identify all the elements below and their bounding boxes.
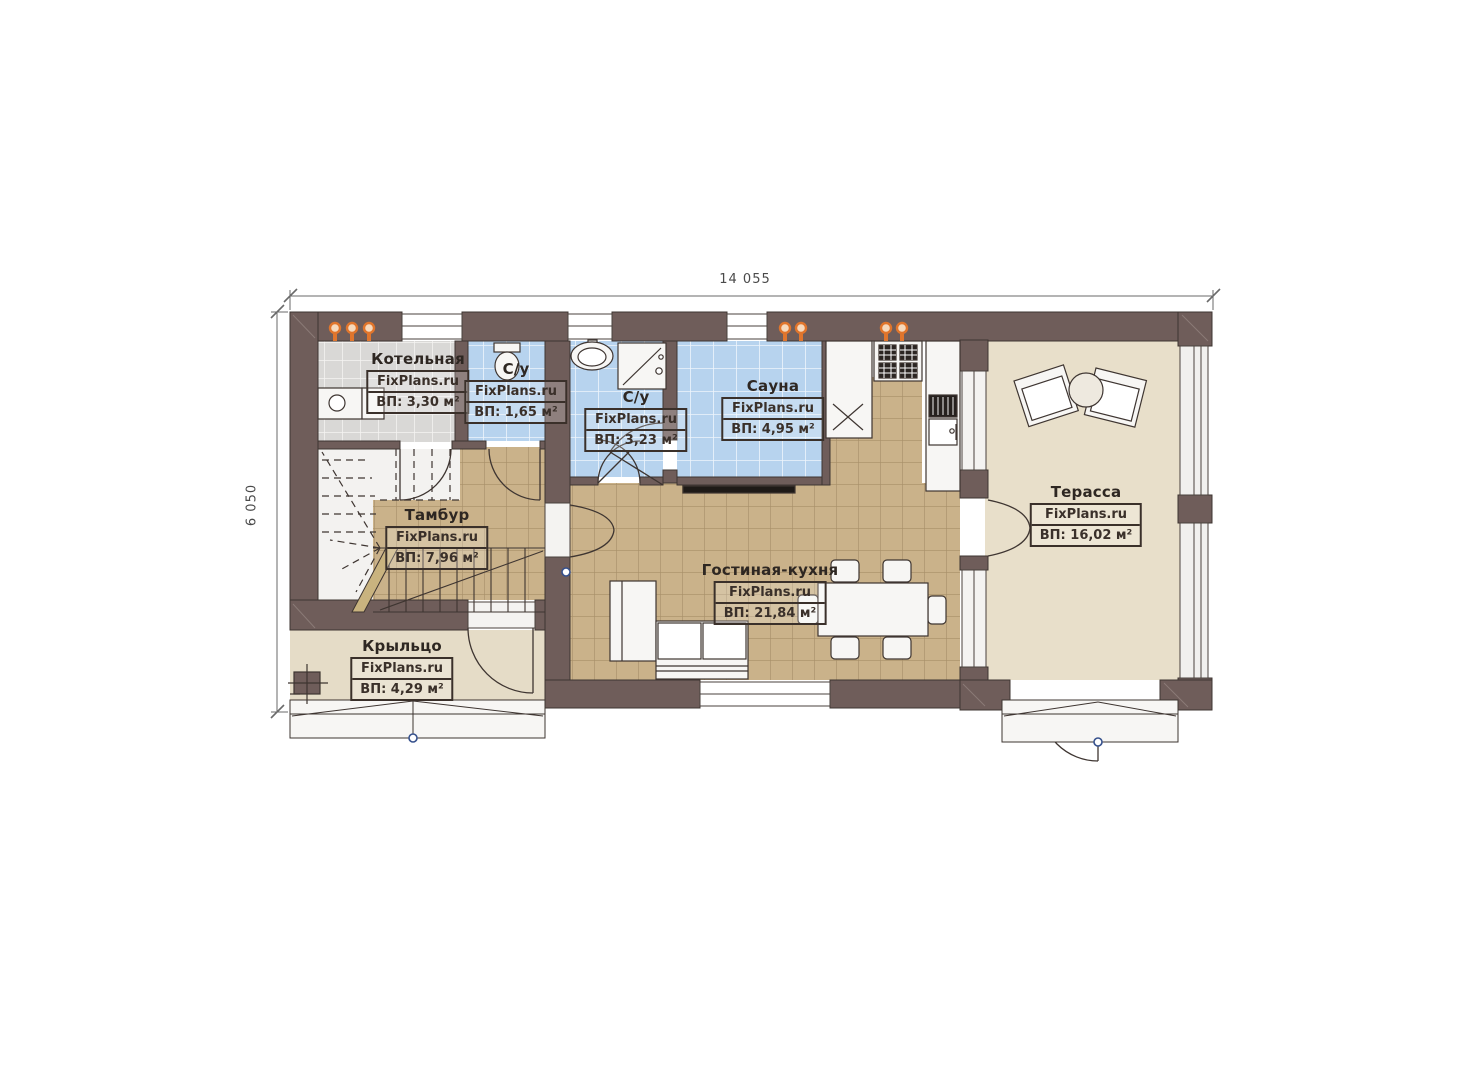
tv-icon: [683, 486, 795, 493]
room-name: Гостиная-кухня: [702, 561, 839, 579]
room-info-box: FixPlans.ru ВП: 4,95 м²: [721, 397, 824, 441]
room-area: ВП: 7,96 м²: [387, 547, 486, 568]
room-label-sauna: Сауна FixPlans.ru ВП: 4,95 м²: [721, 377, 824, 441]
watermark-text: FixPlans.ru: [586, 410, 685, 429]
floor-plan-page: 14 055 6 050 Котельная FixPlans.ru ВП: 3…: [0, 0, 1473, 1080]
room-info-box: FixPlans.ru ВП: 4,29 м²: [350, 657, 453, 701]
room-info-box: FixPlans.ru ВП: 3,30 м²: [366, 370, 469, 414]
room-info-box: FixPlans.ru ВП: 3,23 м²: [584, 408, 687, 452]
room-area: ВП: 4,29 м²: [352, 678, 451, 699]
room-label-boiler: Котельная FixPlans.ru ВП: 3,30 м²: [366, 350, 469, 414]
watermark-text: FixPlans.ru: [387, 528, 486, 547]
room-area: ВП: 16,02 м²: [1032, 524, 1140, 545]
entry-marker-dot: [562, 568, 570, 576]
glazing-living-terrace: [962, 371, 986, 667]
room-info-box: FixPlans.ru ВП: 21,84 м²: [714, 581, 826, 625]
porch-steps: [290, 700, 545, 742]
watermark-text: FixPlans.ru: [368, 372, 467, 391]
room-label-wc1: С/у FixPlans.ru ВП: 1,65 м²: [464, 360, 567, 424]
window-top-1: [402, 314, 462, 339]
terrace-table-icon: [1069, 373, 1103, 407]
armchair-icon: [610, 581, 656, 661]
room-area: ВП: 21,84 м²: [716, 602, 824, 623]
room-area: ВП: 4,95 м²: [723, 418, 822, 439]
window-living-south: [700, 682, 830, 706]
room-area: ВП: 1,65 м²: [466, 401, 565, 422]
stove-icon: [874, 341, 922, 381]
watermark-text: FixPlans.ru: [352, 659, 451, 678]
room-name: Котельная: [366, 350, 469, 368]
watermark-text: FixPlans.ru: [1032, 505, 1140, 524]
sofa-icon: [656, 621, 748, 679]
room-info-box: FixPlans.ru ВП: 16,02 м²: [1030, 503, 1142, 547]
room-label-wc2: С/у FixPlans.ru ВП: 3,23 м²: [584, 388, 687, 452]
dimension-width-label: 14 055: [719, 272, 771, 287]
room-area: ВП: 3,23 м²: [586, 429, 685, 450]
room-name: Терасса: [1030, 483, 1142, 501]
window-top-2: [568, 314, 612, 339]
kitchen-sink-icon: [929, 395, 957, 445]
terrace-steps: [1002, 700, 1178, 746]
floor-plan-drawing: [0, 0, 1473, 1080]
room-name: С/у: [464, 360, 567, 378]
watermark-text: FixPlans.ru: [723, 399, 822, 418]
window-top-3: [727, 314, 767, 339]
room-name: Сауна: [721, 377, 824, 395]
room-label-porch: Крыльцо FixPlans.ru ВП: 4,29 м²: [350, 637, 453, 701]
room-info-box: FixPlans.ru ВП: 7,96 м²: [385, 526, 488, 570]
room-area: ВП: 3,30 м²: [368, 391, 467, 412]
room-name: Тамбур: [385, 506, 488, 524]
room-label-tambour: Тамбур FixPlans.ru ВП: 7,96 м²: [385, 506, 488, 570]
dimension-height-label: 6 050: [245, 484, 260, 526]
watermark-text: FixPlans.ru: [466, 382, 565, 401]
room-name: Крыльцо: [350, 637, 453, 655]
room-label-terrace: Терасса FixPlans.ru ВП: 16,02 м²: [1030, 483, 1142, 547]
tambour-living-opening: [545, 503, 570, 557]
room-info-box: FixPlans.ru ВП: 1,65 м²: [464, 380, 567, 424]
shower-icon: [618, 343, 666, 389]
room-label-living-kitchen: Гостиная-кухня FixPlans.ru ВП: 21,84 м²: [702, 561, 839, 625]
watermark-text: FixPlans.ru: [716, 583, 824, 602]
room-name: С/у: [584, 388, 687, 406]
